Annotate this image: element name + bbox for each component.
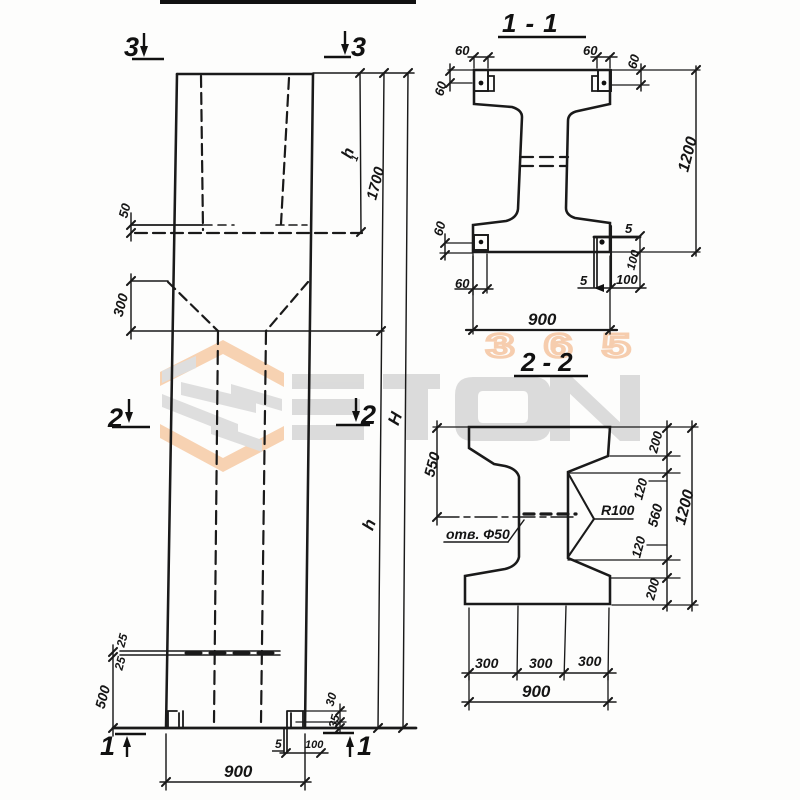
svg-text:5: 5 <box>580 273 588 288</box>
svg-text:300: 300 <box>529 655 553 671</box>
svg-text:2-2: 2-2 <box>520 347 580 377</box>
svg-text:900: 900 <box>224 762 253 781</box>
svg-text:1-1: 1-1 <box>502 8 567 38</box>
svg-text:R100: R100 <box>601 502 635 518</box>
svg-text:5: 5 <box>625 221 633 236</box>
svg-text:60: 60 <box>455 276 470 291</box>
svg-text:3: 3 <box>486 328 514 365</box>
svg-text:3: 3 <box>124 32 139 62</box>
svg-text:2: 2 <box>107 403 123 433</box>
svg-text:отв. Ф50: отв. Ф50 <box>446 526 510 542</box>
svg-text:1: 1 <box>100 731 115 761</box>
svg-text:3: 3 <box>351 32 366 62</box>
svg-text:300: 300 <box>578 653 602 669</box>
svg-text:100: 100 <box>305 739 324 751</box>
svg-text:900: 900 <box>528 310 557 329</box>
svg-text:1: 1 <box>357 731 372 761</box>
svg-text:5: 5 <box>275 737 282 751</box>
svg-text:60: 60 <box>583 43 598 58</box>
svg-text:60: 60 <box>455 43 470 58</box>
svg-text:2: 2 <box>360 400 376 430</box>
svg-text:300: 300 <box>475 655 499 671</box>
svg-text:900: 900 <box>522 682 551 701</box>
svg-text:100: 100 <box>616 272 638 287</box>
